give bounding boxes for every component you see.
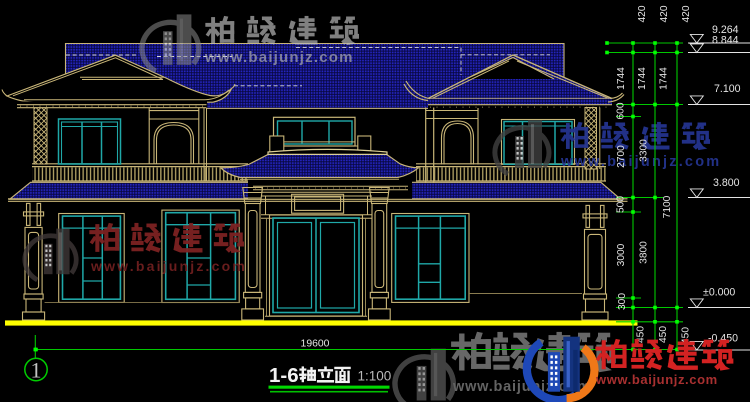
svg-text:www.baijunjz.com: www.baijunjz.com [90, 258, 247, 274]
svg-text:1744: 1744 [659, 67, 670, 90]
svg-text:3.800: 3.800 [713, 177, 740, 189]
svg-text:19600: 19600 [301, 339, 330, 350]
svg-text:www.baijunjz.com: www.baijunjz.com [204, 49, 354, 66]
svg-text:420: 420 [681, 5, 692, 22]
svg-text:420: 420 [637, 5, 648, 22]
svg-text:420: 420 [659, 5, 670, 22]
svg-text:1-6: 1-6 [269, 364, 299, 387]
svg-text:600: 600 [616, 102, 627, 119]
svg-text:450: 450 [658, 326, 669, 343]
svg-text:1:100: 1:100 [358, 369, 392, 384]
svg-text:500: 500 [616, 196, 627, 213]
svg-text:8.844: 8.844 [712, 35, 739, 47]
svg-text:3000: 3000 [616, 243, 627, 266]
svg-text:300: 300 [617, 293, 628, 310]
svg-text:3300: 3300 [639, 139, 650, 162]
svg-text:3800: 3800 [639, 241, 650, 264]
svg-text:2700: 2700 [616, 145, 627, 168]
svg-text:www.baijunjz.com: www.baijunjz.com [595, 372, 718, 387]
svg-text:7100: 7100 [662, 195, 673, 218]
svg-text:1744: 1744 [616, 67, 627, 90]
svg-text:7.100: 7.100 [714, 83, 741, 95]
svg-text:1: 1 [31, 358, 42, 383]
svg-text:±0.000: ±0.000 [703, 287, 735, 299]
svg-text:1744: 1744 [637, 67, 648, 90]
